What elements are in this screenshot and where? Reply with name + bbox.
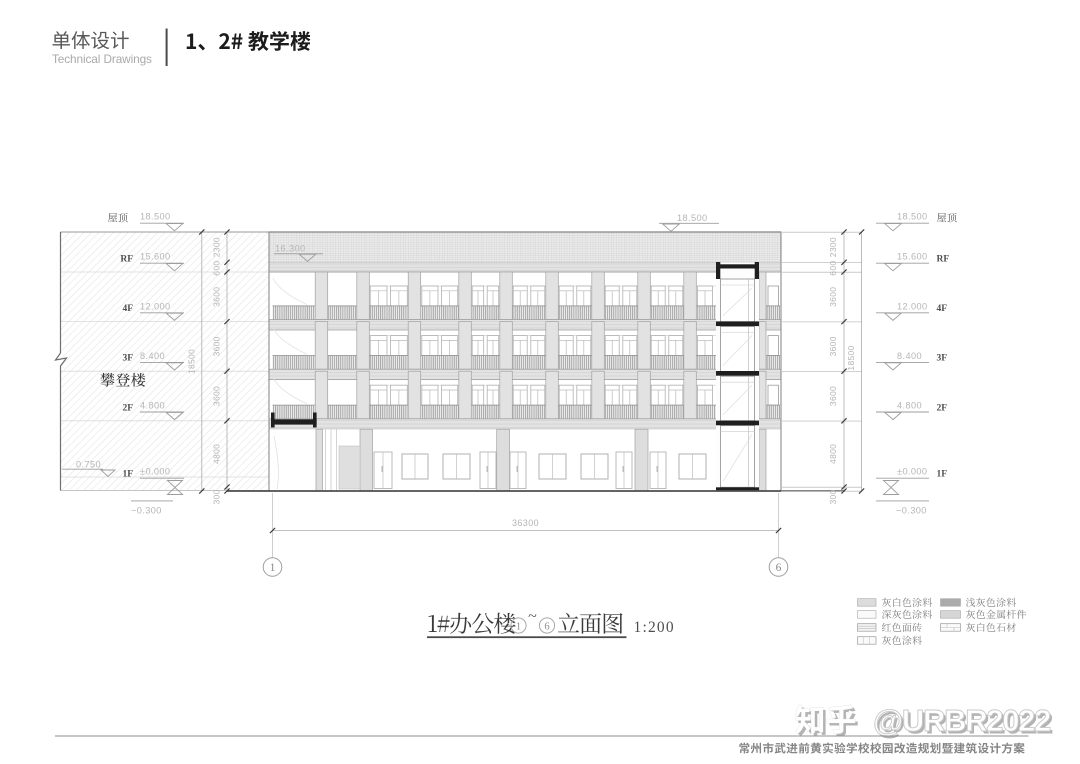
svg-text:4.800: 4.800: [140, 401, 165, 411]
svg-text:3F: 3F: [937, 354, 948, 364]
svg-text:3F: 3F: [122, 354, 133, 364]
svg-text:RF: RF: [937, 255, 950, 265]
svg-text:600: 600: [212, 261, 222, 276]
svg-text:3600: 3600: [828, 336, 838, 356]
svg-text:2300: 2300: [212, 237, 222, 257]
svg-text:1F: 1F: [937, 470, 948, 480]
svg-text:4800: 4800: [828, 444, 838, 464]
svg-text:1:200: 1:200: [634, 619, 675, 636]
svg-text:1F: 1F: [122, 470, 133, 480]
svg-text:4F: 4F: [122, 304, 133, 314]
svg-text:4800: 4800: [212, 444, 222, 464]
svg-text:300: 300: [828, 489, 838, 504]
svg-text:12.000: 12.000: [140, 301, 171, 311]
svg-text:2F: 2F: [122, 403, 133, 413]
svg-text:−0.300: −0.300: [896, 506, 927, 516]
svg-text:36300: 36300: [512, 518, 539, 528]
svg-text:2F: 2F: [937, 403, 948, 413]
svg-text:±0.000: ±0.000: [140, 467, 170, 477]
svg-text:18.500: 18.500: [897, 212, 928, 222]
svg-text:12.000: 12.000: [897, 301, 928, 311]
svg-text:3600: 3600: [212, 287, 222, 307]
svg-text:RF: RF: [120, 255, 133, 265]
svg-text:15.600: 15.600: [140, 252, 171, 262]
svg-text:−0.300: −0.300: [131, 506, 162, 516]
svg-text:6: 6: [544, 621, 549, 632]
svg-text:2300: 2300: [828, 237, 838, 257]
svg-text:18500: 18500: [187, 349, 197, 374]
svg-text:600: 600: [828, 261, 838, 276]
svg-text:4F: 4F: [937, 304, 948, 314]
svg-text:0.750: 0.750: [76, 460, 101, 470]
svg-text:18.500: 18.500: [677, 213, 708, 223]
svg-text:18.500: 18.500: [140, 212, 171, 222]
svg-text:16.300: 16.300: [275, 244, 306, 254]
svg-text:18500: 18500: [846, 345, 856, 370]
svg-text:1: 1: [516, 621, 521, 632]
svg-text:8.400: 8.400: [897, 351, 922, 361]
svg-text:8.400: 8.400: [140, 351, 165, 361]
svg-text:3600: 3600: [828, 386, 838, 406]
svg-text:300: 300: [212, 489, 222, 504]
svg-text:3600: 3600: [212, 336, 222, 356]
svg-text:~: ~: [528, 608, 537, 625]
svg-text:1: 1: [270, 562, 276, 574]
svg-text:Technical Drawings: Technical Drawings: [52, 52, 152, 66]
svg-text:15.600: 15.600: [897, 252, 928, 262]
svg-text:±0.000: ±0.000: [897, 467, 927, 477]
svg-text:6: 6: [776, 562, 782, 574]
svg-text:@URBR2022: @URBR2022: [873, 703, 1050, 738]
svg-text:3600: 3600: [212, 386, 222, 406]
svg-text:4.800: 4.800: [897, 401, 922, 411]
svg-text:3600: 3600: [828, 287, 838, 307]
